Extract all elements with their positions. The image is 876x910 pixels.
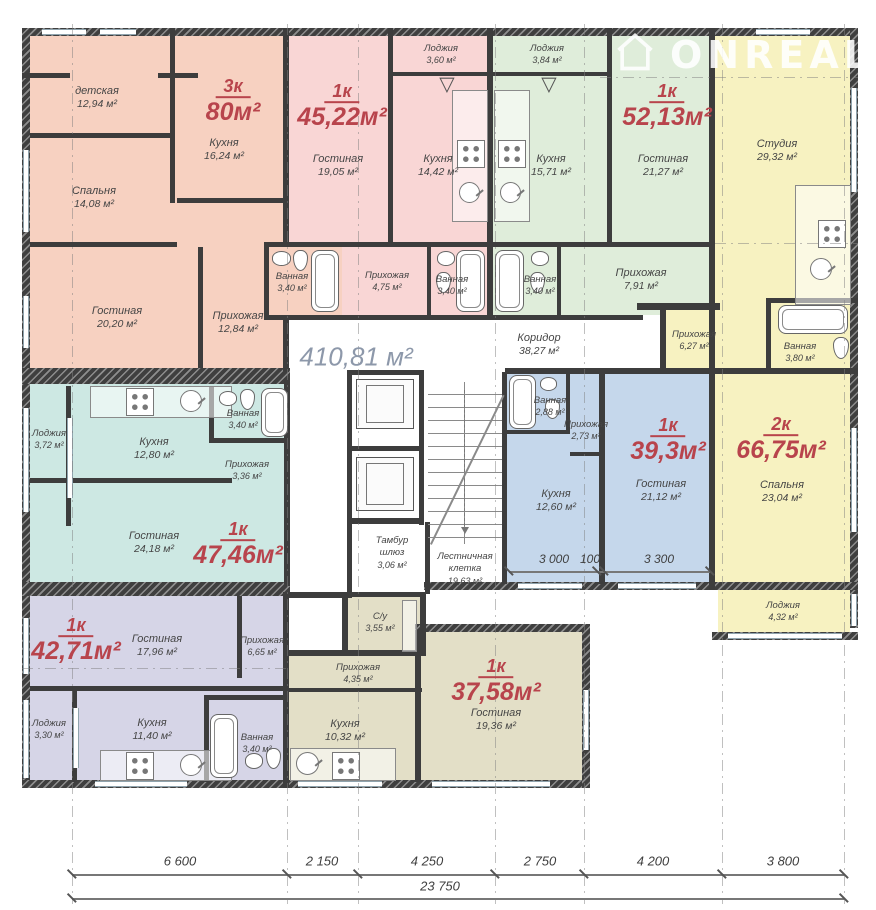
- axis-line: [844, 24, 845, 904]
- apartment-label: 1к 52,13м²: [622, 82, 711, 132]
- room-label: Гостиная19,05 м²: [313, 152, 363, 180]
- window: [851, 88, 857, 192]
- room-label: Ванная3,40 м²: [227, 408, 259, 432]
- tambur-label: Тамбур шлюз3,06 м²: [365, 535, 419, 571]
- wall: [427, 247, 431, 315]
- wall: [712, 582, 858, 590]
- window: [23, 408, 29, 512]
- elevator-car: [356, 379, 414, 429]
- elevator-car: [356, 457, 414, 511]
- room-label: С/у3,55 м²: [365, 611, 394, 635]
- wall: [766, 300, 771, 370]
- apartment-label: 1к 42,71м²: [31, 616, 120, 666]
- stairs-arrow: [461, 527, 469, 534]
- room-label: Кухня12,60 м²: [536, 487, 576, 515]
- window: [728, 633, 842, 639]
- wall: [342, 592, 426, 597]
- wall: [30, 686, 285, 691]
- dimension-label: 6 600: [164, 854, 197, 869]
- window: [23, 150, 29, 232]
- room-label: Кухня16,24 м²: [204, 136, 244, 164]
- window: [518, 583, 582, 589]
- shower-unit: [402, 600, 417, 652]
- window: [95, 781, 187, 787]
- room-label: Лоджия4,32 м²: [766, 600, 800, 624]
- apartment-area: 52,13м²: [622, 103, 711, 132]
- wall: [283, 28, 289, 245]
- stairs-arrow-line: [464, 390, 465, 526]
- bathtub-icon: [778, 305, 848, 334]
- watermark: ONREAL: [612, 30, 873, 79]
- apartment-type: 1к: [478, 657, 513, 678]
- window: [298, 781, 382, 787]
- room-label: Прихожая6,27 м²: [672, 329, 716, 353]
- brand-text: ONREAL: [670, 33, 873, 77]
- axis-line: [287, 24, 288, 904]
- room-label: Спальня23,04 м²: [760, 478, 804, 506]
- bathtub-icon: [210, 714, 238, 778]
- bathtub-icon: [509, 375, 536, 429]
- stove-icon: [457, 140, 485, 168]
- room-label: Прихожая12,84 м²: [212, 309, 263, 337]
- sink-icon: [810, 258, 832, 280]
- wall: [264, 242, 269, 318]
- sink-icon: [296, 752, 319, 775]
- room-label: Ванная3,40 м²: [436, 274, 468, 298]
- wall: [22, 73, 70, 78]
- total-area-label: 410,81 м²: [299, 342, 412, 373]
- room-label: Гостиная24,18 м²: [129, 529, 179, 557]
- basin-icon: [272, 251, 291, 266]
- room-label: Кухня15,71 м²: [531, 152, 571, 180]
- axis-line: [72, 24, 73, 904]
- room-label: Гостиная20,20 м²: [92, 304, 142, 332]
- window: [42, 29, 86, 35]
- wall: [283, 318, 289, 372]
- room-label: Гостиная21,12 м²: [636, 477, 686, 505]
- dimension-label: 2 750: [524, 854, 557, 869]
- room-label: Лоджия3,84 м²: [530, 43, 564, 67]
- axis-line: [584, 24, 585, 904]
- bathtub-icon: [495, 250, 524, 312]
- apartment-label: 2к 66,75м²: [736, 415, 825, 465]
- sink-icon: [500, 182, 521, 203]
- kitchen-counter: [90, 386, 232, 418]
- window: [73, 708, 79, 768]
- basin-icon: [531, 251, 549, 266]
- wall: [177, 198, 285, 203]
- dimension-label: 3 800: [767, 854, 800, 869]
- wall: [505, 368, 858, 374]
- apartment-label: 1к 37,58м²: [451, 657, 540, 707]
- bathtub-icon: [311, 250, 339, 312]
- floor-plan: 3к 80м² 1к 45,22м² 1к 52,13м² 2к 66,75м²…: [0, 0, 876, 910]
- window: [23, 700, 29, 778]
- apartment-type: 2к: [763, 415, 798, 436]
- apartment-area: 66,75м²: [736, 436, 825, 465]
- room-label: детская12,94 м²: [75, 84, 119, 112]
- basin-icon: [437, 251, 455, 266]
- stairs-steps: [428, 382, 502, 544]
- axis-line: [22, 668, 290, 669]
- room-label: Студия29,32 м²: [757, 137, 797, 165]
- wall: [30, 478, 232, 483]
- window: [432, 781, 550, 787]
- wall: [170, 28, 175, 203]
- room-label: Гостиная19,36 м²: [471, 706, 521, 734]
- dimension-label: 2 150: [306, 854, 339, 869]
- wall: [30, 133, 172, 138]
- room-label: Кухня12,80 м²: [134, 435, 174, 463]
- window-opening-icon: [439, 72, 454, 97]
- room-label: Ванная3,40 м²: [276, 271, 308, 295]
- bathtub-icon: [261, 388, 288, 437]
- room-label: Прихожая2,73 м²: [564, 419, 608, 443]
- wall: [415, 630, 421, 782]
- room-label: Ванная3,40 м²: [524, 274, 556, 298]
- wall: [570, 452, 601, 456]
- corridor-label: Коридор38,27 м²: [517, 331, 560, 359]
- dimension-total-label: 23 750: [420, 879, 460, 894]
- wall: [415, 624, 590, 632]
- apartment-area: 47,46м²: [193, 541, 282, 570]
- apartment-type: 1к: [650, 416, 685, 437]
- wall: [388, 28, 393, 243]
- wall: [507, 430, 570, 434]
- room-label: Кухня11,40 м²: [132, 716, 171, 744]
- stairs-label: Лестничная клетка19,63 м²: [426, 551, 504, 587]
- room-label: Кухня10,32 м²: [325, 717, 365, 745]
- wall: [660, 310, 666, 368]
- stove-icon: [332, 752, 360, 780]
- apartment-type: 1к: [58, 616, 93, 637]
- wall: [204, 695, 287, 700]
- room-label: Гостиная21,27 м²: [638, 152, 688, 180]
- apartment-type: 1к: [220, 520, 255, 541]
- dimension-label: 4 250: [411, 854, 444, 869]
- sink-icon: [459, 182, 480, 203]
- wall: [30, 242, 177, 247]
- wall: [158, 73, 198, 78]
- room-label: Лоджия3,72 м²: [32, 428, 66, 452]
- stove-icon: [126, 752, 154, 780]
- wall: [22, 582, 290, 596]
- room-label: Прихожая3,36 м²: [225, 459, 269, 483]
- apartment-type: 1к: [324, 82, 359, 103]
- apartment-area: 42,71м²: [31, 637, 120, 666]
- dimension-line: [72, 874, 844, 876]
- window: [23, 296, 29, 348]
- wall: [557, 247, 561, 315]
- room-label: Прихожая4,35 м²: [336, 662, 380, 686]
- apartment-type: 1к: [649, 82, 684, 103]
- house-icon: [612, 30, 658, 79]
- dimension-label: 100: [580, 552, 600, 566]
- wall: [264, 242, 715, 247]
- wall: [264, 315, 643, 320]
- room-label: Прихожая6,65 м²: [240, 635, 284, 659]
- apartment-type: 3к: [215, 77, 250, 98]
- sink-icon: [180, 754, 202, 776]
- apartment-area: 39,3м²: [630, 437, 705, 466]
- stove-icon: [498, 140, 526, 168]
- room-label: Гостиная17,96 м²: [132, 632, 182, 660]
- window: [851, 428, 857, 532]
- window: [851, 594, 857, 626]
- room-label: Прихожая7,91 м²: [615, 266, 666, 294]
- apartment-area: 80м²: [206, 98, 261, 127]
- sink-icon: [180, 390, 202, 412]
- window: [100, 29, 136, 35]
- room-label: Лоджия3,60 м²: [424, 43, 458, 67]
- window-opening-icon: [541, 72, 556, 97]
- stove-icon: [126, 388, 154, 416]
- wall: [283, 592, 348, 598]
- room-label: Кухня14,42 м²: [418, 152, 458, 180]
- apartment-label: 1к 45,22м²: [297, 82, 386, 132]
- apartment-area: 37,58м²: [451, 678, 540, 707]
- dimension-line: [72, 898, 844, 900]
- basin-icon: [219, 391, 237, 406]
- wall: [347, 524, 352, 598]
- axis-line: [495, 24, 496, 904]
- window: [23, 618, 29, 674]
- room-label: Ванная3,40 м²: [241, 732, 273, 756]
- apartment-label: 1к 47,46м²: [193, 520, 282, 570]
- apartment-label: 3к 80м²: [206, 77, 261, 127]
- room-label: Ванная2,88 м²: [534, 395, 566, 419]
- wall: [209, 438, 290, 443]
- wall: [198, 247, 203, 368]
- basin-icon: [540, 377, 557, 391]
- axis-line: [722, 24, 723, 904]
- wall: [22, 368, 290, 384]
- axis-line: [715, 243, 858, 244]
- room-label: Ванная3,80 м²: [784, 341, 816, 365]
- apartment-area: 45,22м²: [297, 103, 386, 132]
- window: [618, 583, 696, 589]
- dimension-label: 3 300: [644, 552, 674, 566]
- dimension-label: 4 200: [637, 854, 670, 869]
- room-label: Прихожая4,75 м²: [365, 270, 409, 294]
- room-label: Спальня14,08 м²: [72, 184, 116, 212]
- wall: [342, 592, 348, 656]
- wall: [637, 303, 720, 310]
- room-label: Лоджия3,30 м²: [32, 718, 66, 742]
- apartment-label: 1к 39,3м²: [630, 416, 705, 466]
- wall: [283, 688, 422, 692]
- dimension-line: [509, 571, 710, 573]
- dimension-label: 3 000: [539, 552, 569, 566]
